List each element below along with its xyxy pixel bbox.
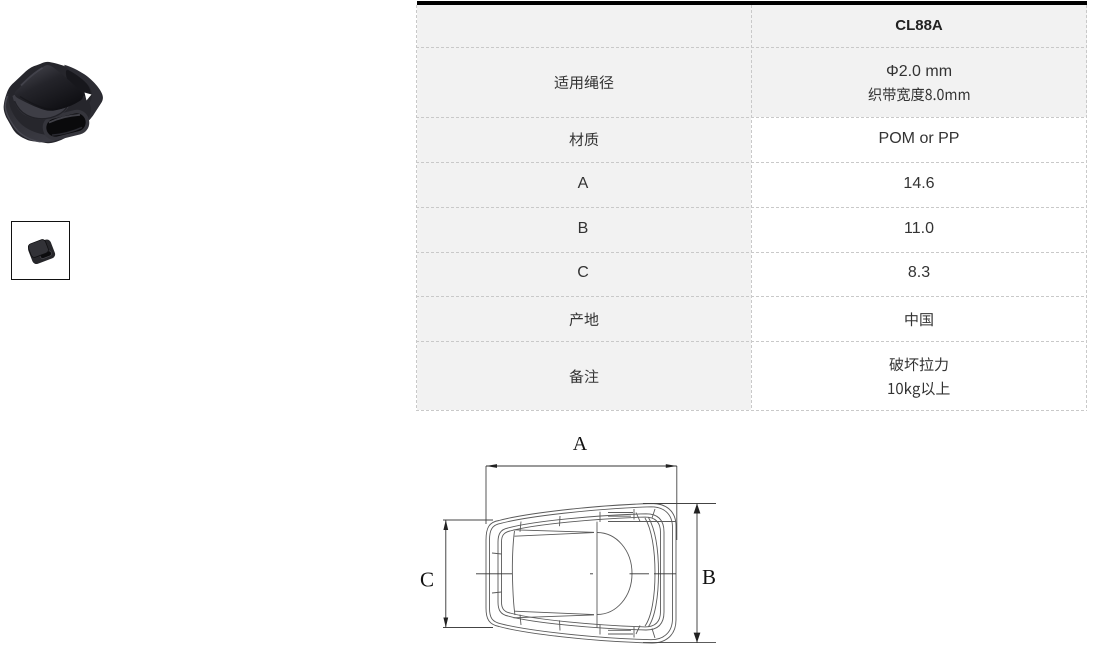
svg-text:C: C — [420, 568, 434, 592]
svg-text:B: B — [702, 565, 716, 589]
svg-text:A: A — [573, 433, 588, 455]
